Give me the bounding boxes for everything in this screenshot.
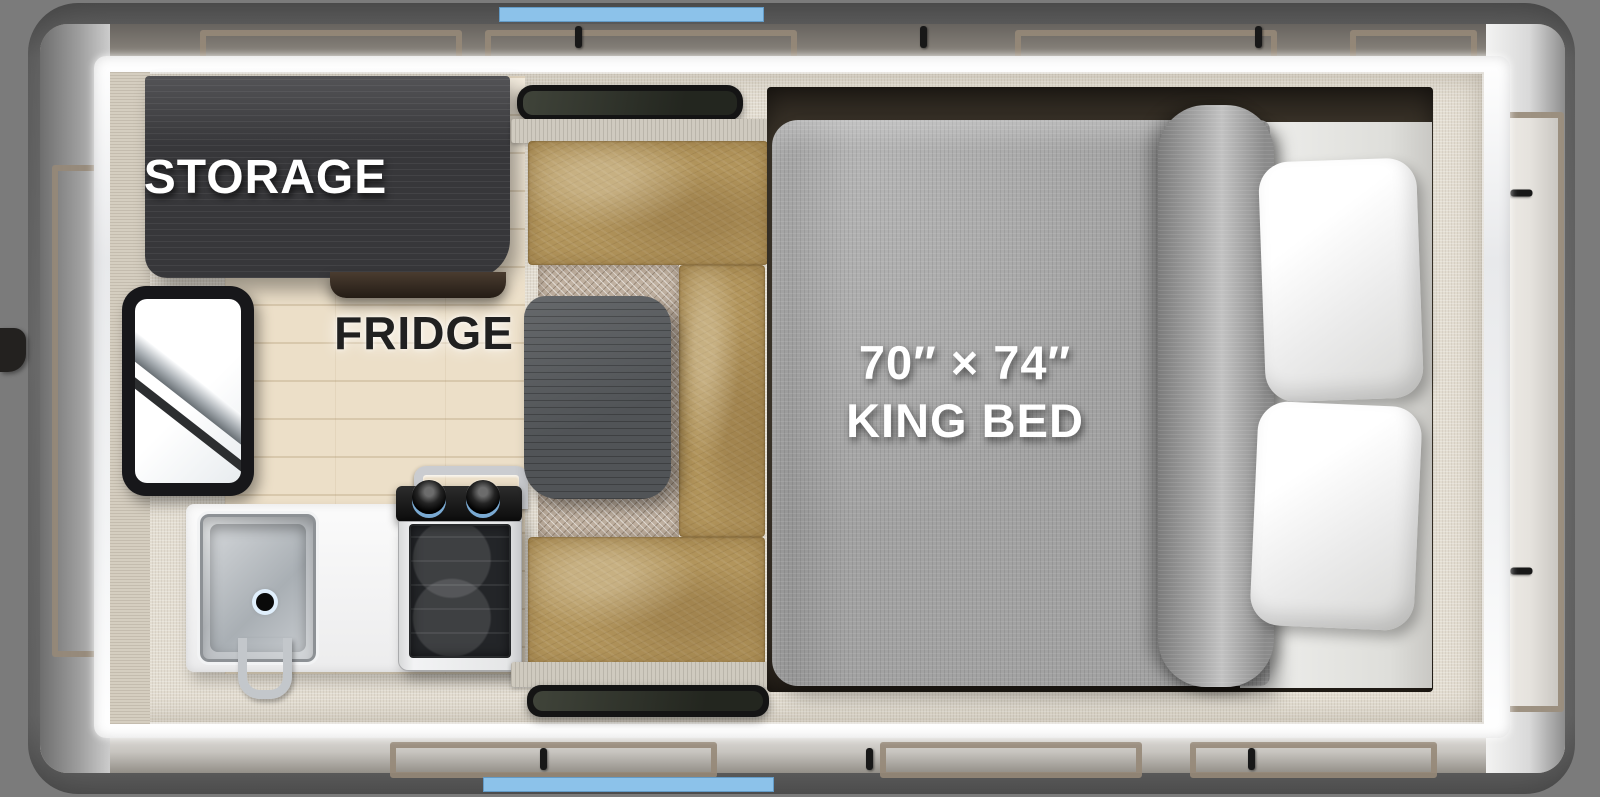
stove-oven-window [409,524,511,658]
entry-mat [527,685,769,717]
overhead-tray [517,85,743,121]
fridge-label: FRIDGE [306,306,542,360]
dinette-frame-top [511,119,769,143]
roof-accent-bar-bottom [483,777,774,792]
dinette-bench-side [679,265,765,537]
overhead-tray-inner [523,91,737,115]
wall-clip [1248,748,1255,770]
bed-name-text: KING BED [770,392,1160,450]
window-glass [135,299,241,483]
wall-clip [920,26,927,48]
wall-clip [575,26,582,48]
wall-decal [1190,742,1437,778]
storage-label: STORAGE [144,150,387,205]
stove-burner [466,480,500,514]
bed-pillow [1258,157,1424,402]
wall-clip [1511,568,1533,575]
dinette-table [524,296,671,499]
wall-clip [540,748,547,770]
wall-clip [866,748,873,770]
awning-bracket [0,328,26,372]
wall-clip [1511,190,1533,197]
stove-burner [412,480,446,514]
window-pane [135,323,241,453]
dinette-bench-front [528,537,765,665]
wall-decal [390,742,717,778]
stove-cooktop [396,486,522,522]
bed-size-text: 70″ × 74″ [770,334,1160,392]
dinette-bench-back [528,141,768,265]
entry-mat-inner [533,691,763,711]
wall-clip [1255,26,1262,48]
stove-oven [398,521,522,671]
bed-label: 70″ × 74″ KING BED [770,334,1160,450]
sink-basin [210,524,306,652]
window [122,286,254,496]
sink-drain [256,593,274,611]
wall-decal [880,742,1142,778]
dinette-frame-bottom [511,662,769,687]
bed-pillow [1249,401,1423,632]
storage-cabinet: STORAGE [145,76,510,278]
storage-shelf [330,272,506,298]
camper-floorplan: STORAGE FRIDGE [0,0,1600,797]
roof-accent-bar-top [499,7,764,22]
faucet [238,638,292,699]
